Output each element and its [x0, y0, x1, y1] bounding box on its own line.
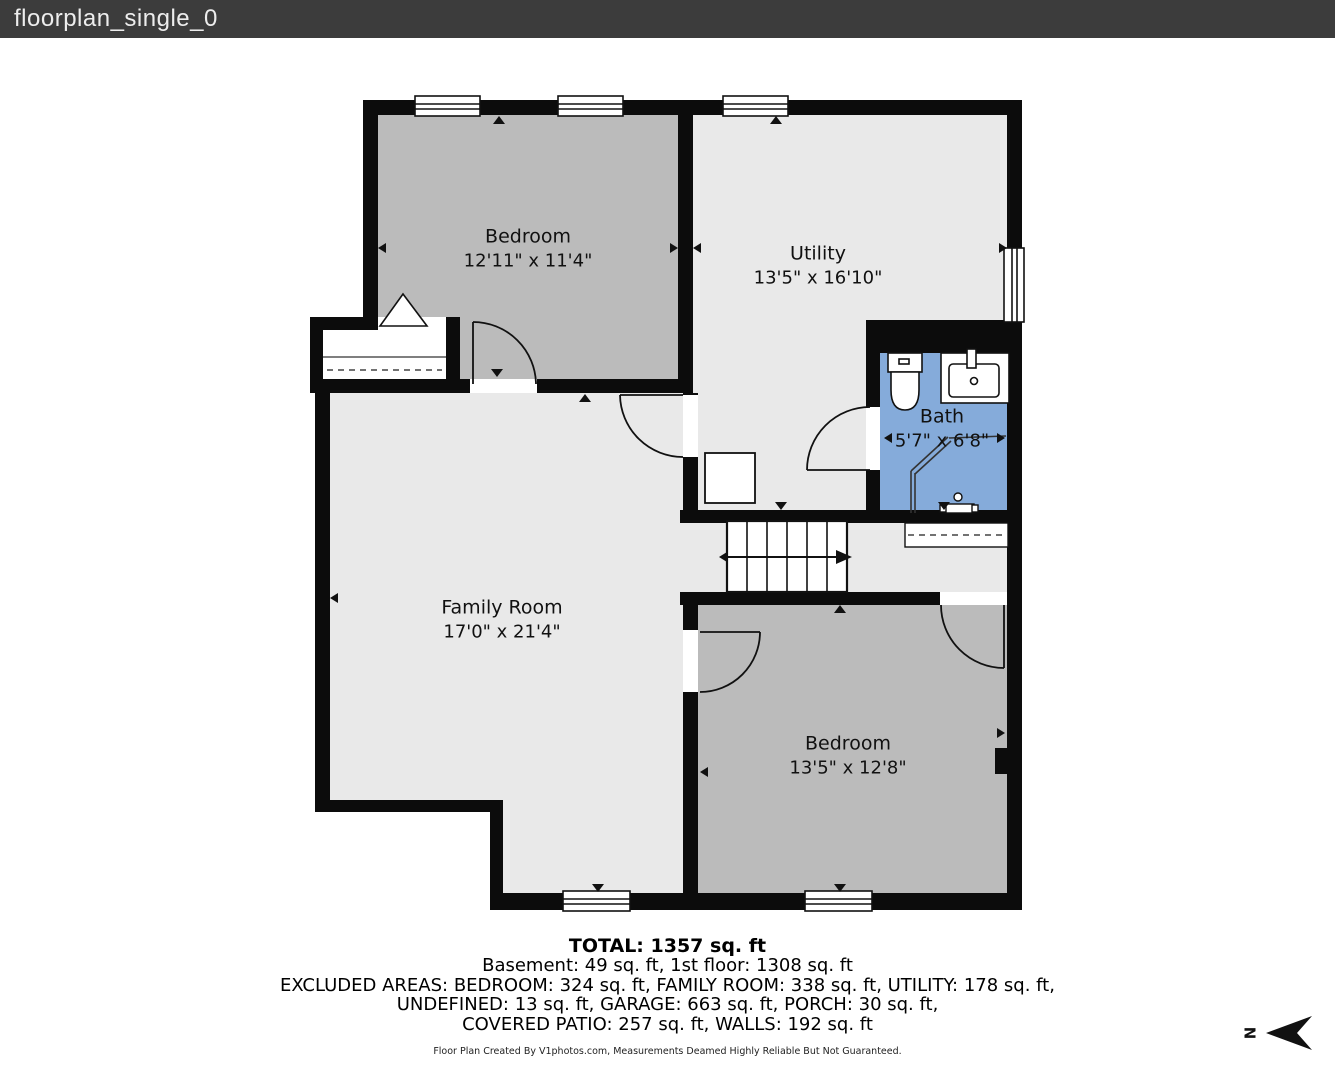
bath-name: Bath: [895, 405, 989, 430]
excluded-areas-3: COVERED PATIO: 257 sq. ft, WALLS: 192 sq…: [0, 1015, 1335, 1035]
window-utility-top: [723, 96, 788, 116]
screenshot: floorplan_single_0: [0, 0, 1335, 1080]
wall-bedroom1-left: [363, 100, 378, 330]
bedroom2-dims: 13'5" x 12'8": [789, 757, 906, 781]
hall-door-opening: [683, 395, 698, 457]
wall-bath-top: [866, 320, 1022, 353]
wall-family-jog: [490, 800, 503, 895]
bedroom2-left-door-opening: [683, 630, 698, 692]
window-utility-right: [1004, 248, 1024, 322]
closet-landing: [905, 523, 1008, 547]
bedroom1-label: Bedroom 12'11" x 11'4": [464, 225, 593, 274]
bedroom2-name: Bedroom: [789, 732, 906, 757]
family-room-label: Family Room 17'0" x 21'4": [441, 596, 562, 645]
north-label: N: [1241, 1027, 1259, 1040]
wall-chimney-notch: [995, 748, 1008, 774]
window-family-bottom: [563, 891, 630, 911]
floorplan-drawing: [0, 0, 1335, 1080]
wall-right-outer: [1007, 100, 1022, 910]
utility-dims: 13'5" x 16'10": [754, 267, 883, 291]
hall-cabinet: [705, 453, 755, 503]
area-summary: TOTAL: 1357 sq. ft Basement: 49 sq. ft, …: [0, 936, 1335, 1034]
bath-dims: 5'7" x 6'8": [895, 430, 989, 454]
stairs: [719, 521, 852, 592]
utility-label: Utility 13'5" x 16'10": [754, 242, 883, 291]
excluded-areas-2: UNDEFINED: 13 sq. ft, GARAGE: 663 sq. ft…: [0, 995, 1335, 1015]
sink-icon: [941, 349, 1009, 403]
bedroom1-name: Bedroom: [464, 225, 593, 250]
bedroom2-label: Bedroom 13'5" x 12'8": [789, 732, 906, 781]
wall-family-step: [315, 800, 503, 812]
window-bedroom2-bottom: [805, 891, 872, 911]
toilet-icon: [888, 353, 922, 410]
bedroom1-door-opening: [470, 379, 537, 393]
window-bedroom1-b: [558, 96, 623, 116]
family-room-name: Family Room: [441, 596, 562, 621]
bath-door-opening: [866, 407, 880, 470]
family-room-dims: 17'0" x 21'4": [441, 621, 562, 645]
floors-areas: Basement: 49 sq. ft, 1st floor: 1308 sq.…: [0, 956, 1335, 976]
wall-family-left: [315, 378, 330, 812]
credit-line: Floor Plan Created By V1photos.com, Meas…: [0, 1046, 1335, 1057]
bedroom1-dims: 12'11" x 11'4": [464, 250, 593, 274]
total-area: TOTAL: 1357 sq. ft: [0, 936, 1335, 956]
wall-bedroom1-utility: [678, 100, 693, 393]
closet-interior: [323, 330, 446, 379]
window-bedroom1-a: [415, 96, 480, 116]
family-room-ext-floor: [503, 800, 693, 895]
bath-label: Bath 5'7" x 6'8": [895, 405, 989, 454]
excluded-areas-1: EXCLUDED AREAS: BEDROOM: 324 sq. ft, FAM…: [0, 976, 1335, 996]
utility-name: Utility: [754, 242, 883, 267]
bedroom2-right-door-opening: [940, 592, 1007, 605]
